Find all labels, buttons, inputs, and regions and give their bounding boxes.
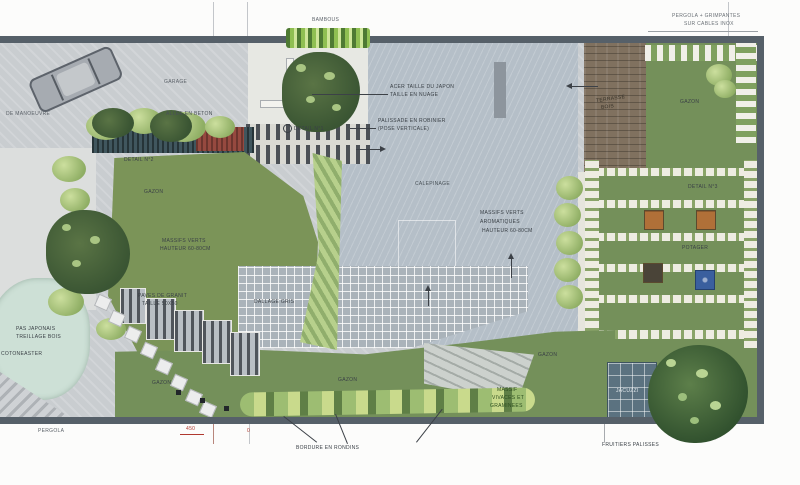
landscape-plan-canvas: PERGOLA + GRIMPANTES SUR CABLES INOX BAM… [0,0,800,485]
grid-line [249,424,250,444]
slat-band-gap [246,140,370,145]
label-pas-japonais-1: PAS JAPONAIS [16,326,55,332]
flower-border-strip [240,387,535,416]
label-bordure-rondins: BORDURE EN RONDINS [296,445,359,451]
label-gazon-bottomright: GAZON [538,352,557,358]
label-pergola-bottom: PERGOLA [38,428,64,434]
label-acer-2: TAILLE EN NUAGE [390,92,438,98]
potager-path-v-right [744,160,757,348]
label-palissade-2: (POSE VERTICALE) [378,126,429,132]
label-massifs-left-1: MASSIFS VERTS [162,238,206,244]
label-detail-1: DETAIL N°1 [294,126,324,132]
label-pas-japonais-2: TREILLAGE BOIS [16,334,61,340]
label-jacuzzi: JACUZZI [616,388,639,394]
arrow-up-icon [425,285,431,291]
label-de-manoeuvre: DE MANOEUVRE [6,111,50,117]
label-garage: GARAGE [164,79,187,85]
gray-column [494,62,506,118]
planter-orange-2 [696,210,716,230]
label-detail-3: DETAIL N°3 [688,184,718,190]
potager-path-h5 [585,295,757,303]
dark-shrub-top-1 [92,108,134,138]
label-gazon-bottomleft: GAZON [152,380,171,386]
label-acer-1: ACER TAILLE DU JAPON [390,84,454,90]
plan-border-right [757,36,764,424]
leader-line [511,258,512,278]
shrub-ball [60,188,90,212]
planter-blue [695,270,715,290]
shrub-ball [714,80,736,98]
potager-path-h1 [585,168,757,176]
pergola-post [200,398,205,403]
shrub-ball [556,285,583,309]
label-arom-2: AROMATIQUES [480,219,520,225]
leader-line [428,290,429,306]
leader-line [572,86,598,87]
shrub-ball [554,258,581,282]
shrub-ball [556,176,583,200]
label-dim-0: 0 [247,428,250,434]
label-dallage-gris: DALLAGE GRIS [254,299,294,305]
potager-path-v-left [585,160,599,348]
dark-tree-left [46,210,130,294]
potager-path-h4 [585,264,757,272]
label-gazon-bottommid: GAZON [338,377,357,383]
slat-step [230,332,260,376]
label-palissade-1: PALISSADE EN ROBINIER [378,118,446,124]
large-tree-bottom-right [648,345,748,443]
dimension-tick-red [180,434,204,435]
shrub-ball [554,203,581,227]
topright-ladder-vertical [736,43,756,143]
potager-path-h3 [585,233,757,241]
wood-deck [584,43,646,173]
label-fruitiers: FRUITIERS PALISSES [602,442,659,448]
shrub-ball [52,156,86,182]
label-arom-1: MASSIFS VERTS [480,210,524,216]
label-calepinage: CALEPINAGE [415,181,450,187]
arrow-up-icon [508,253,514,259]
bamboo-hedge [286,28,370,48]
label-gazon-topright: GAZON [680,99,699,105]
label-arom-3: HAUTEUR 60-80CM [482,228,533,234]
label-paves-2: TAILLE 50X50 [142,301,178,307]
potager-path-h2 [585,200,757,208]
label-vivaces-3: GRAMINEES [490,403,523,409]
label-detail-2: DETAIL N°2 [124,157,154,163]
label-bambous: BAMBOUS [312,17,339,23]
grid-line [213,2,214,36]
shrub-ball [556,231,583,255]
label-dim-450: 450 [186,426,195,432]
label-massifs-left-2: HAUTEUR 60-80CM [160,246,211,252]
pergola-post [224,406,229,411]
leader-line [350,128,376,129]
planter-orange-1 [644,210,664,230]
label-allee-beton: ALLEE EN BETON [166,111,213,117]
plan-border-bottom [0,417,764,424]
arrow-left-icon [566,83,572,89]
label-potager: POTAGER [682,245,708,251]
label-gazon-left: GAZON [144,189,163,195]
slat-step [202,320,232,364]
label-pergola-grimpantes: PERGOLA + GRIMPANTES [672,13,740,19]
label-paves-1: PAVES DE GRANIT [138,293,187,299]
planter-dark [643,263,663,283]
pergola-post [176,390,181,395]
plan-border-top [0,36,764,43]
grid-line [648,31,758,32]
grid-line [213,424,214,444]
label-vivaces-2: VIVACES ET [492,395,524,401]
label-cotoneaster: COTONEASTER [1,351,42,357]
label-vivaces-1: MASSIF [497,387,517,393]
shrub-ball [205,116,235,138]
detail-1-circle-icon [283,124,292,133]
slat-step [174,310,204,352]
grid-line [247,2,248,36]
leader-line [356,149,380,150]
arrow-right-icon [380,146,386,152]
label-pergola-grimpantes-2: SUR CABLES INOX [684,21,734,27]
leader-line [312,94,388,95]
